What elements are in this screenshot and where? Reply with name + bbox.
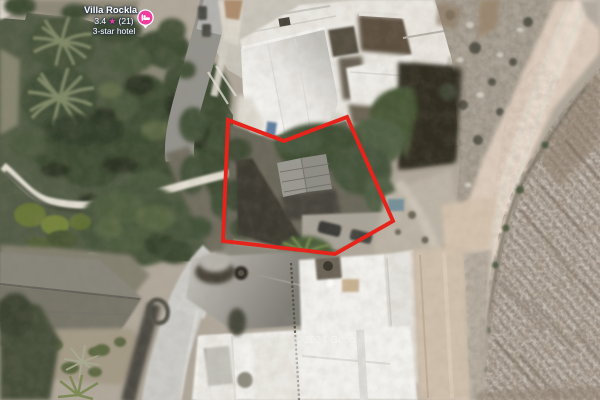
svg-text:©2024 Goog: ©2024 Goog bbox=[296, 334, 356, 346]
